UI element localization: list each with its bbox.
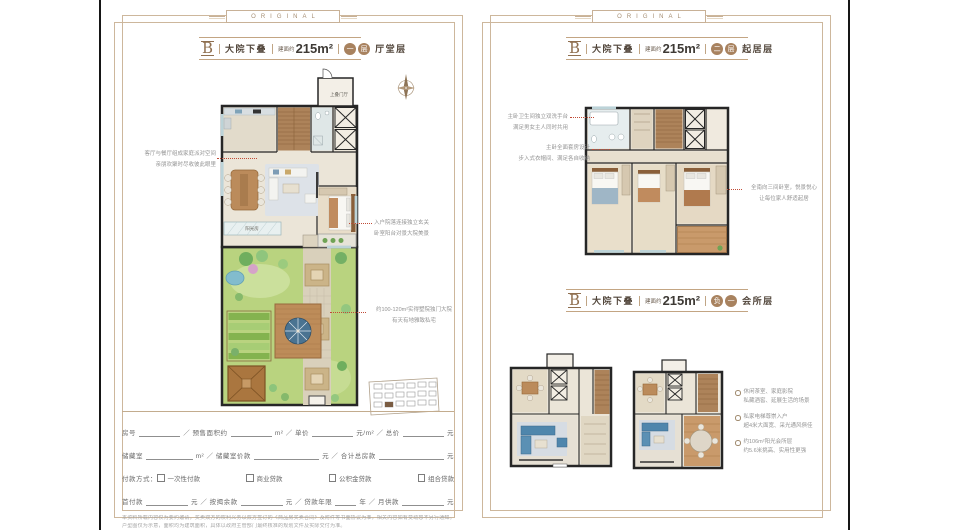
type-name: 大院下叠	[592, 294, 634, 307]
basement-note: 休闲茶室、家庭影院私藏酒窖、延展生活的场景	[735, 388, 823, 406]
bullet-text: 私家电梯尊崇入户超4米大面宽、采光通风俱佳	[744, 413, 813, 431]
title-divider	[639, 296, 640, 306]
checkbox-option[interactable]: 组合贷款	[418, 473, 455, 483]
form-row: 付款方式：一次性付款商业贷款公积金贷款组合贷款	[122, 473, 454, 483]
annotation-line: 主卧卫生间独立双洗手台	[498, 112, 568, 123]
right-plan-title-lower: B 大院下叠 建面约 215m² 负 一 会所层	[566, 289, 748, 312]
floor-name: 起居层	[742, 42, 774, 55]
bullet-text: 休闲茶室、家庭影院私藏酒窖、延展生活的场景	[744, 388, 810, 406]
basement-lobby	[662, 360, 686, 372]
master-bedroom	[678, 165, 727, 224]
checkbox-option[interactable]: 公积金贷款	[329, 473, 372, 483]
form-label: 元 ／ 贷款年限	[286, 496, 333, 506]
type-name: 大院下叠	[225, 42, 267, 55]
fine-print-line: 户型图仅为示意，面积均为建筑面积，具体以政府主管部门最终核准的规划文件及实际交付…	[122, 523, 454, 530]
type-letter: B	[568, 41, 581, 56]
site-key-plan	[366, 376, 442, 416]
form-blank-field[interactable]	[146, 452, 193, 460]
terrace	[678, 227, 727, 253]
bullet-line: 约5.6米挑高、实用性更强	[744, 447, 807, 456]
bullet-icon	[735, 415, 741, 421]
leader-line	[349, 223, 372, 224]
checkbox[interactable]	[329, 474, 337, 482]
sunroom-label: 阳光房	[232, 226, 272, 231]
home-theater	[636, 416, 680, 466]
annotation-living: 客厅与餐厅组成家庭派对空间 亲朋欢聚时尽收彼此眼里	[128, 149, 216, 171]
title-divider	[705, 44, 706, 54]
walkin-closet	[632, 110, 653, 149]
title-divider	[586, 296, 587, 306]
annotation-entry: 入户院落连接独立玄关 卧室阳台对景大院美景	[374, 218, 454, 240]
annotation-line: 让每位家人舒适起居	[744, 194, 824, 205]
checkbox-option[interactable]: 一次性付款	[157, 473, 200, 483]
wood-deck	[275, 304, 321, 358]
basement-notes: 休闲茶室、家庭影院私藏酒窖、延展生活的场景私家电梯尊崇入户超4米大面宽、采光通风…	[735, 388, 823, 463]
checkbox[interactable]	[418, 474, 426, 482]
form-label: 元	[447, 427, 454, 437]
annotation-courtyard: 约100-120m²实得墅院独门大院 有天有地雅致私宅	[368, 305, 460, 327]
type-letter: B	[568, 293, 581, 308]
leader-line	[570, 117, 594, 118]
floor-badge: 负	[711, 295, 723, 307]
leader-line	[217, 158, 257, 159]
staircase	[656, 110, 683, 149]
upper-lobby-label: 上叠门厅	[324, 92, 354, 97]
form-blank-field[interactable]	[379, 452, 444, 460]
annotation-line: 全南向三间卧室，悦景悦心	[744, 183, 824, 194]
type-name: 大院下叠	[592, 42, 634, 55]
basement-note: 约106m²阳光会所层约5.6米挑高、实用性更强	[735, 438, 823, 456]
form-row: 房号／ 预售面积约m² ／ 单价元/m² ／ 总价元	[122, 427, 454, 437]
elevator-shafts	[686, 110, 705, 149]
bedroom-middle	[634, 165, 675, 253]
form-rows: 房号／ 预售面积约m² ／ 单价元/m² ／ 总价元储藏室m² ／ 储藏室价款元…	[122, 427, 454, 506]
leader-line	[592, 149, 610, 150]
annotation-line: 约100-120m²实得墅院独门大院	[368, 305, 460, 316]
bedroom-balcony	[318, 234, 356, 247]
bathtub	[590, 112, 618, 125]
form-blank-field[interactable]	[403, 429, 444, 437]
floor-badge: 二	[711, 43, 723, 55]
bullet-line: 约106m²阳光会所层	[744, 438, 807, 447]
floor-badge: 层	[725, 43, 737, 55]
form-label: 付款方式：	[122, 473, 157, 483]
title-divider	[639, 44, 640, 54]
annotation-line: 客厅与餐厅组成家庭派对空间	[128, 149, 216, 160]
living-area	[265, 164, 319, 216]
bullet-line: 休闲茶室、家庭影院	[744, 388, 810, 397]
form-label: 元	[447, 450, 454, 460]
checkbox-label: 商业贷款	[257, 473, 283, 483]
annotation-line: 亲朋欢聚时尽收彼此眼里	[128, 160, 216, 171]
double-basin	[609, 134, 615, 140]
area-prefix: 建面约	[278, 45, 295, 53]
title-divider	[272, 44, 273, 54]
left-brand-banner: ORIGINAL	[226, 10, 340, 23]
brochure-canvas: ORIGINAL B 大院下叠 建面约 215m² 一 层 厅堂层	[0, 0, 960, 530]
form-blank-field[interactable]	[402, 498, 444, 506]
annotation-line: 步入式衣帽间、满足各自收纳	[500, 154, 590, 165]
home-theater	[513, 416, 577, 464]
title-divider	[586, 44, 587, 54]
annotation-line: 主卧全面套房设计	[500, 143, 590, 154]
brand-banner-text: ORIGINAL	[246, 14, 320, 20]
form-blank-field[interactable]	[335, 498, 356, 506]
floorplan-level2	[578, 92, 736, 268]
floorplan-basement-a	[505, 350, 623, 476]
bullet-line: 超4米大面宽、采光通风俱佳	[744, 422, 813, 431]
checkbox-option[interactable]: 商业贷款	[246, 473, 283, 483]
annotation-south-rooms: 全南向三间卧室，悦景悦心 让每位家人舒适起居	[744, 183, 824, 205]
staircase	[698, 374, 718, 412]
leader-line	[727, 189, 742, 190]
form-label: 房号	[122, 427, 136, 437]
upper-lobby	[318, 69, 353, 106]
type-letter: B	[201, 41, 214, 56]
area-prefix: 建面约	[645, 45, 662, 53]
gazebo	[228, 366, 265, 401]
form-blank-field[interactable]	[254, 452, 319, 460]
bullet-icon	[735, 440, 741, 446]
basement-lobby	[547, 354, 573, 368]
bullet-icon	[735, 390, 741, 396]
floor-badge: 一	[725, 295, 737, 307]
basement-note: 私家电梯尊崇入户超4米大面宽、采光通风俱佳	[735, 413, 823, 431]
wine-cellar	[581, 416, 609, 464]
floor-badge: 层	[358, 43, 370, 55]
area-value: 215m²	[296, 41, 334, 56]
form-label: 元 ／ 合计总房款	[322, 450, 376, 460]
form-blank-field[interactable]	[146, 498, 188, 506]
annotation-line: 有天有地雅致私宅	[368, 316, 460, 327]
form-blank-field[interactable]	[312, 429, 353, 437]
light-well-door	[553, 464, 567, 467]
right-plan-title-upper: B 大院下叠 建面约 215m² 二 层 起居层	[566, 37, 748, 60]
bathroom	[312, 108, 332, 151]
garden-gate	[309, 396, 325, 405]
form-label: m² ／ 单价	[275, 427, 309, 437]
form-label: ／ 预售面积约	[183, 427, 227, 437]
sofa	[521, 426, 555, 435]
form-blank-field[interactable]	[241, 498, 283, 506]
floor-name: 厅堂层	[375, 42, 407, 55]
hall	[708, 110, 727, 149]
wardrobe	[319, 188, 347, 195]
right-brand-banner: ORIGINAL	[592, 10, 706, 23]
title-divider	[219, 44, 220, 54]
floor-badge: 一	[344, 43, 356, 55]
form-label: 元	[447, 496, 454, 506]
staircase	[595, 370, 610, 414]
dining-area	[225, 170, 265, 210]
checkbox-label: 一次性付款	[168, 473, 201, 483]
brand-banner-text: ORIGINAL	[612, 14, 686, 20]
annotation-line: 卧室阳台对景大院美景	[374, 229, 454, 240]
title-divider	[338, 44, 339, 54]
game-room	[636, 374, 664, 412]
left-crop-line	[99, 0, 101, 530]
master-bathroom	[588, 110, 629, 149]
compass-icon	[393, 70, 419, 102]
form-label: m² ／ 储藏室价款	[196, 450, 251, 460]
form-row: 储藏室m² ／ 储藏室价款元 ／ 合计总房款元	[122, 450, 454, 460]
leader-line	[330, 312, 366, 313]
area-prefix: 建面约	[645, 297, 662, 305]
checkbox-label: 组合贷款	[428, 473, 454, 483]
annotation-master-bath: 主卧卫生间独立双洗手台 满足男女主人同时共用	[498, 112, 568, 134]
round-table	[690, 430, 712, 452]
corridor	[588, 152, 726, 163]
bedroom-left	[588, 165, 631, 253]
area-value: 215m²	[663, 293, 701, 308]
garden	[222, 247, 357, 405]
right-crop-line	[848, 0, 850, 530]
fine-print-line: 本资料所载内容仅为要约邀请，买卖双方的权利义务以双方签订的《商品房买卖合同》及附…	[122, 515, 454, 522]
checkbox-label: 公积金贷款	[339, 473, 372, 483]
sofa	[642, 423, 668, 431]
bullet-text: 约106m²阳光会所层约5.6米挑高、实用性更强	[744, 438, 807, 456]
key-plan-highlight	[385, 402, 393, 407]
annotation-line: 入户院落连接独立玄关	[374, 218, 454, 229]
tea-room	[513, 370, 547, 412]
form-row: 首付款元 ／ 按揭余款元 ／ 贷款年限年 ／ 月供款元	[122, 496, 454, 506]
form-label: 储藏室	[122, 450, 143, 460]
bullet-line: 私家电梯尊崇入户	[744, 413, 813, 422]
bullet-line: 私藏酒窖、延展生活的场景	[744, 397, 810, 406]
form-label: 首付款	[122, 496, 143, 506]
kitchen	[224, 108, 276, 151]
title-divider	[705, 296, 706, 306]
form-label: 元 ／ 按揭余款	[191, 496, 238, 506]
form-label: 元/m² ／ 总价	[356, 427, 400, 437]
floorplan-level1	[215, 66, 363, 408]
left-plan-title: B 大院下叠 建面约 215m² 一 层 厅堂层	[199, 37, 361, 60]
annotation-master-suite: 主卧全面套房设计 步入式衣帽间、满足各自收纳	[500, 143, 590, 165]
annotation-line: 满足男女主人同时共用	[498, 123, 568, 134]
garden-pond	[226, 271, 244, 285]
staircase	[278, 108, 310, 151]
checkbox[interactable]	[246, 474, 254, 482]
form-blank-field[interactable]	[231, 429, 272, 437]
form-label: 年 ／ 月供款	[359, 496, 399, 506]
checkbox[interactable]	[157, 474, 165, 482]
floorplan-basement-b	[630, 358, 730, 478]
form-blank-field[interactable]	[139, 429, 180, 437]
purchase-form: 房号／ 预售面积约m² ／ 单价元/m² ／ 总价元储藏室m² ／ 储藏室价款元…	[122, 411, 454, 529]
floor-name: 会所层	[742, 294, 774, 307]
wine-dining-room	[684, 416, 720, 466]
area-value: 215m²	[663, 41, 701, 56]
